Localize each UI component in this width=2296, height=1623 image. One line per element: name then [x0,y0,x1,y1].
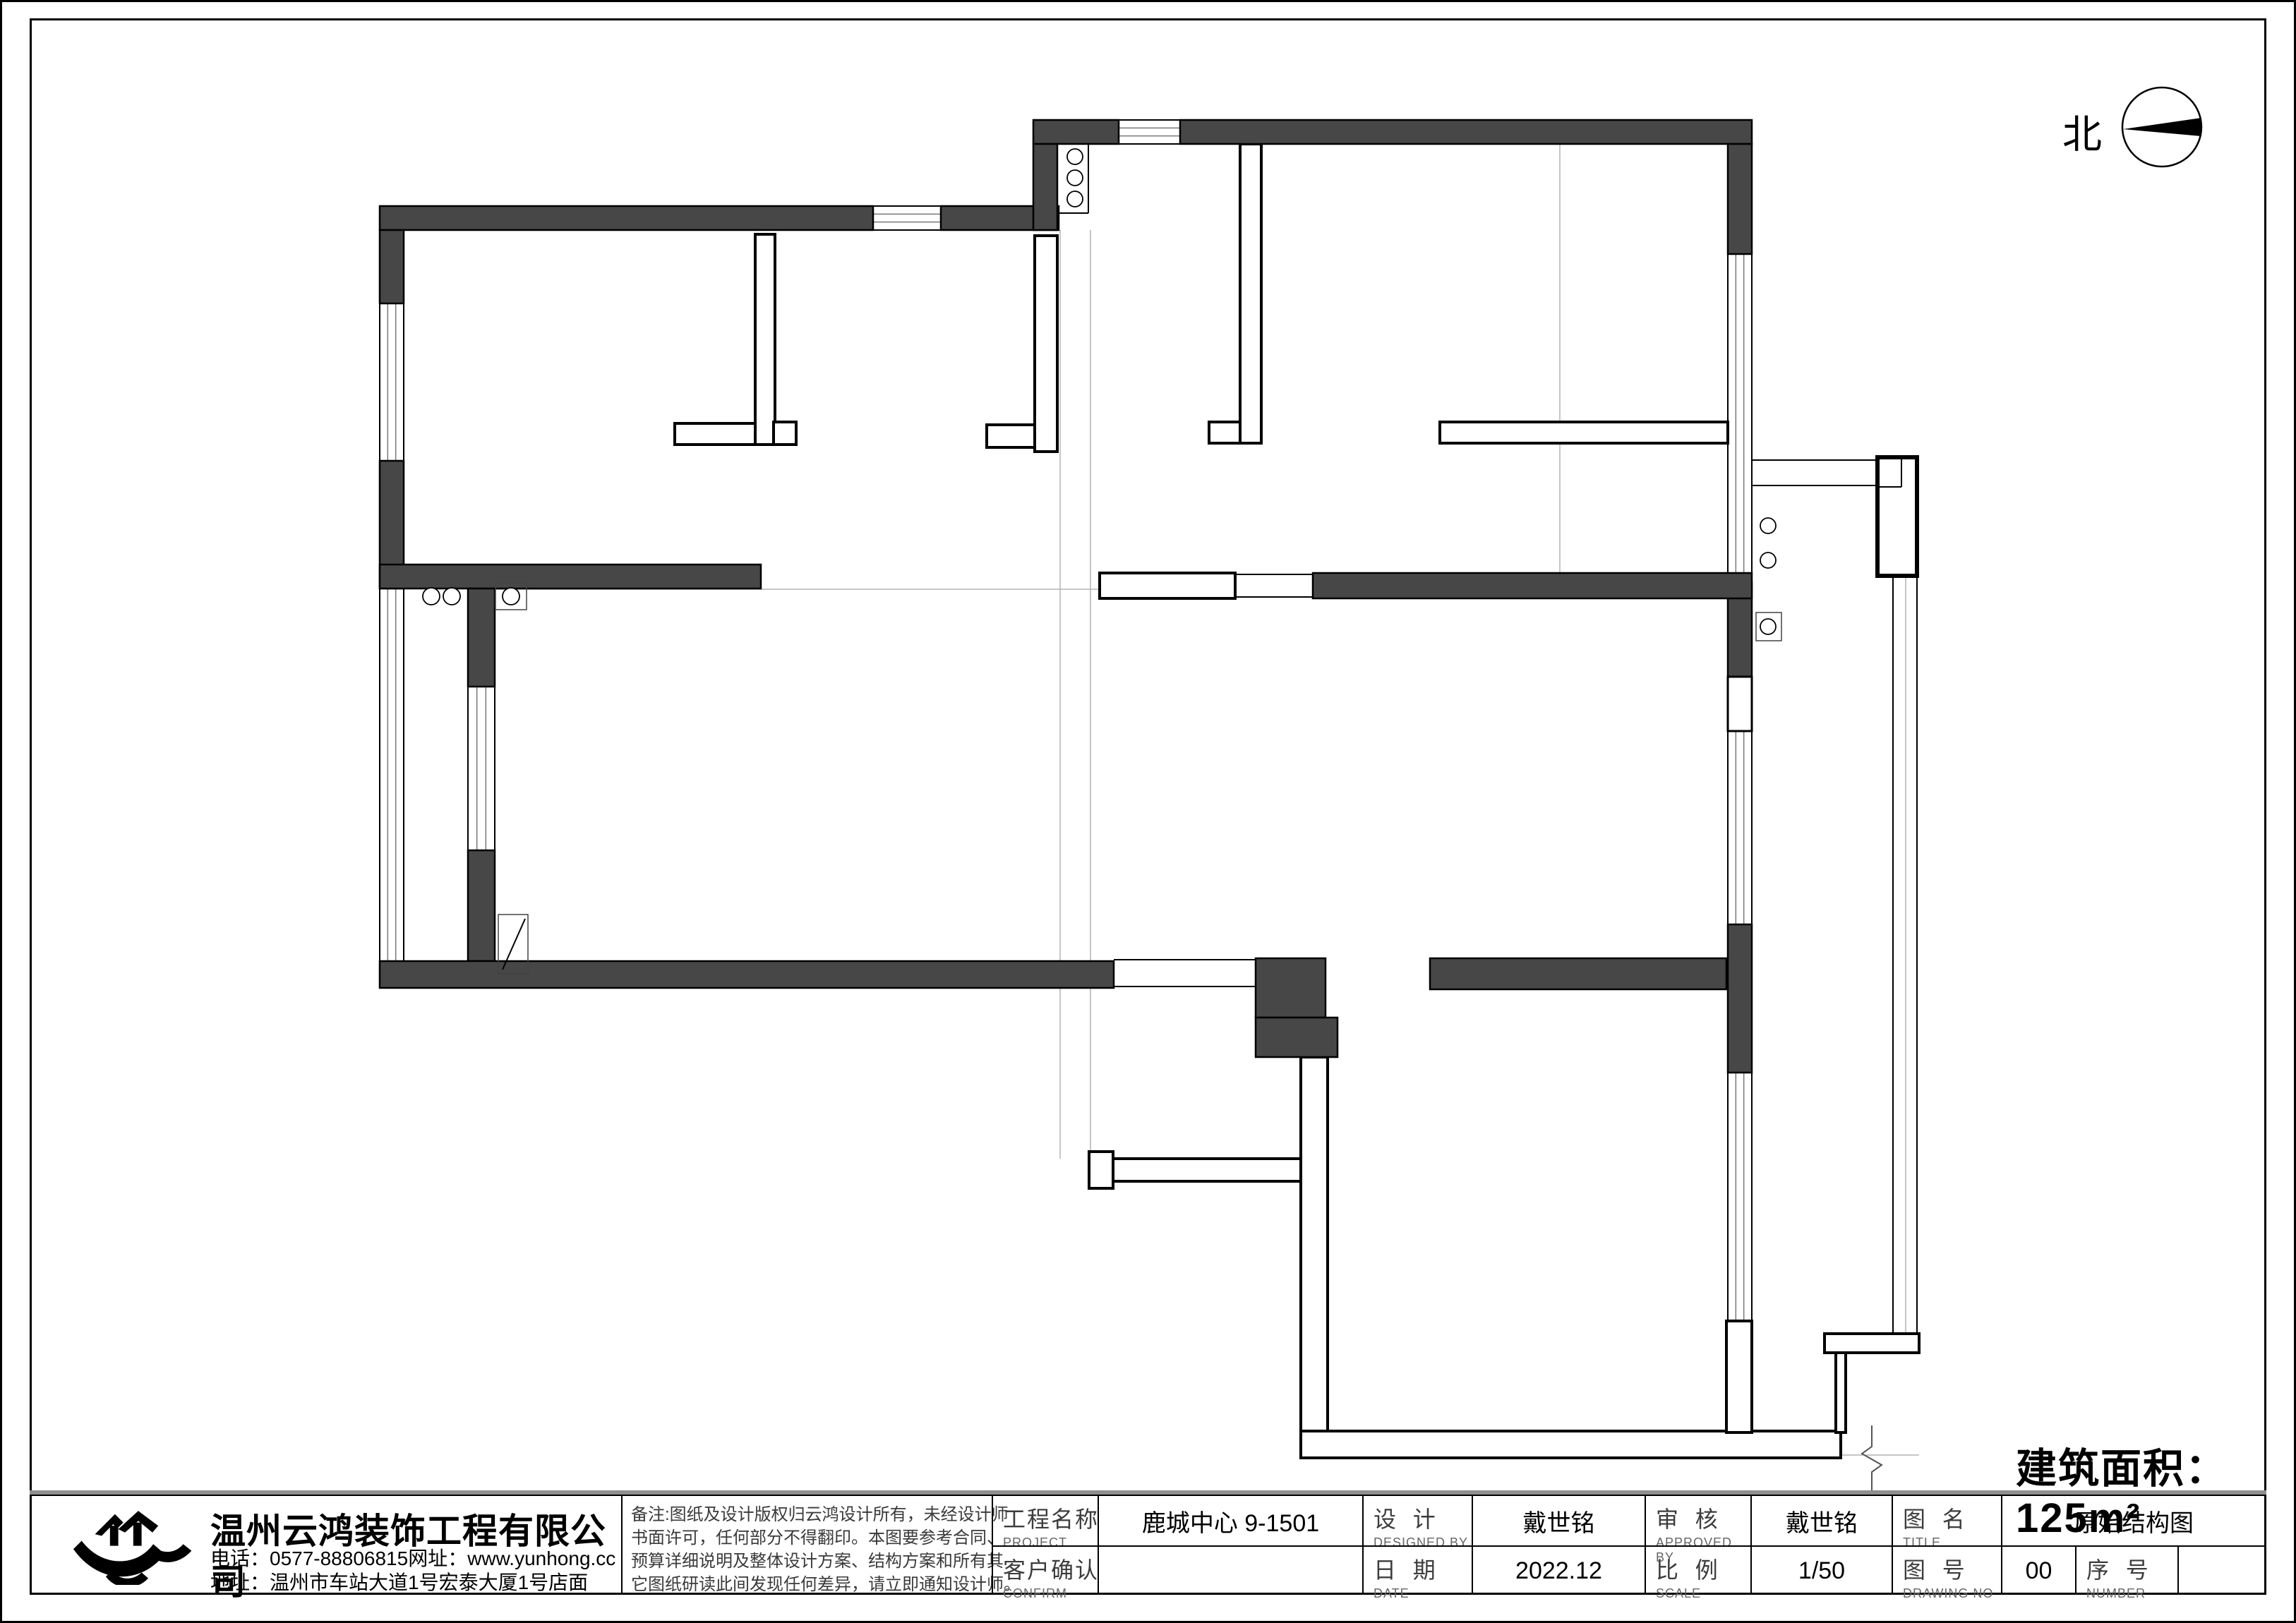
structural-wall [380,961,1114,988]
title-block: 温州云鸿装饰工程有限公司 电话：0577-88806815网址：www.yunh… [30,1490,2266,1595]
partition-wall [1209,422,1240,443]
drawingno-label: 图 号 [1893,1547,2001,1585]
partition-wall [1825,1334,1919,1353]
structural-wall [1728,144,1752,254]
project-label: 工程名称 [993,1496,1098,1534]
scale-label-cell: 比 例 SCALE [1645,1545,1750,1595]
break-symbol [1862,1425,1882,1490]
title-label-cell: 图 名 TITLE [1892,1496,2001,1545]
date-value-cell: 2022.12 [1472,1545,1645,1595]
structural-wall [380,565,761,589]
date-label: 日 期 [1364,1547,1472,1585]
confirm-value-cell [1098,1545,1362,1595]
pipe-circle [1067,149,1083,164]
project-value: 鹿城中心 9-1501 [1099,1496,1362,1545]
structural-wall [1033,144,1057,230]
pipe-circle [1760,553,1776,568]
structural-wall [1728,924,1752,1073]
structural-wall [1430,958,1726,989]
partition-wall [1240,144,1261,443]
project-value-cell: 鹿城中心 9-1501 [1098,1496,1362,1545]
structural-wall [380,206,873,230]
title-value: 原始结构图 [2002,1496,2265,1545]
scale-value-cell: 1/50 [1750,1545,1892,1595]
partition-wall [1440,422,1728,443]
title-value-cell: 原始结构图 [2001,1496,2265,1545]
title-label: 图 名 [1893,1496,2001,1534]
approver-value-cell: 戴世铭 [1750,1496,1892,1545]
partition-wall [1836,1353,1846,1432]
designer-label-cell: 设 计 DESIGNED BY [1362,1496,1472,1545]
confirm-sublabel: CONFIRM [993,1585,1098,1601]
approver-label-cell: 审 核 APPROVED BY [1645,1496,1750,1545]
drawingno-value-cell: 00 [2001,1545,2075,1595]
window [1728,254,1752,583]
structural-wall [1180,120,1752,144]
drawingno-sublabel: DRAWING NO [1893,1585,2001,1601]
window [873,206,941,230]
company-cell: 温州云鸿装饰工程有限公司 电话：0577-88806815网址：www.yunh… [30,1496,621,1595]
window [468,687,495,850]
number-label-cell: 序 号 NUMBER [2075,1545,2177,1595]
designer-label: 设 计 [1364,1496,1472,1534]
window [1728,731,1752,924]
north-label: 北 [2062,103,2102,160]
structural-wall [380,230,404,303]
company-address: 地址：温州市车站大道1号宏泰大厦1号店面 [210,1571,588,1593]
drawingno-value: 00 [2002,1547,2075,1595]
company-logo-icon [71,1506,198,1585]
notes-line3: 预算详细说明及整体设计方案、结构方案和所有其 [631,1552,1004,1571]
confirm-label-cell: 客户确认 CONFIRM [992,1545,1098,1595]
date-sublabel: DATE [1364,1585,1472,1601]
number-value-cell [2177,1545,2266,1595]
partition-wall [1100,573,1235,598]
date-value: 2022.12 [1473,1547,1645,1595]
pipe-circle [1760,518,1776,533]
partition-wall [755,234,775,445]
balcony-wall [1877,457,1917,576]
pipe-circle [1760,619,1776,634]
notes-line1: 备注:图纸及设计版权归云鸿设计所有，未经设计师 [631,1505,1009,1524]
company-phone: 电话：0577-88806815网址：www.yunhong.cc [210,1547,615,1569]
floor-plan-svg [0,0,2296,1623]
structural-wall [468,850,495,961]
pipe-circle [1067,191,1083,207]
window [1728,1073,1752,1321]
drawing-sheet: { "north": {"label": "北"}, "area_label":… [0,0,2296,1623]
window [380,589,404,961]
partition-wall [1113,1159,1301,1181]
pipe-circle [503,588,519,605]
partition-wall [675,423,755,445]
window [380,303,404,461]
number-sublabel: NUMBER [2076,1585,2177,1601]
partition-wall [1726,1321,1752,1432]
structural-wall [1033,120,1119,144]
partition-wall [1301,1057,1328,1432]
drawingno-label-cell: 图 号 DRAWING NO [1892,1545,2001,1595]
structural-wall [468,589,495,687]
title-block-body: 温州云鸿装饰工程有限公司 电话：0577-88806815网址：www.yunh… [30,1495,2266,1595]
designer-value: 戴世铭 [1473,1496,1645,1545]
designer-value-cell: 戴世铭 [1472,1496,1645,1545]
scale-sublabel: SCALE [1646,1585,1750,1601]
partition-wall [1301,1431,1841,1458]
structural-wall [1313,573,1752,598]
date-label-cell: 日 期 DATE [1362,1545,1472,1595]
north-compass-needle [2123,118,2201,136]
notes-line4: 它图纸研读此间发现任何差异，请立即通知设计师。 [631,1575,1021,1594]
approver-value: 戴世铭 [1752,1496,1892,1545]
company-contact: 电话：0577-88806815网址：www.yunhong.cc地址：温州市车… [210,1547,615,1595]
window [1119,120,1180,144]
confirm-label: 客户确认 [993,1547,1098,1585]
structural-wall [1256,1018,1338,1057]
partition-wall [987,425,1035,447]
confirm-value [1099,1547,1362,1595]
project-label-cell: 工程名称 PROJECT [992,1496,1098,1545]
scale-value: 1/50 [1752,1547,1892,1595]
partition-wall [1035,236,1057,452]
number-label: 序 号 [2076,1547,2177,1585]
number-value [2179,1547,2266,1595]
partition-wall [1089,1152,1113,1188]
scale-label: 比 例 [1646,1547,1750,1585]
notes-cell: 备注:图纸及设计版权归云鸿设计所有，未经设计师书面许可，任何部分不得翻印。本图要… [621,1496,992,1595]
pipe-circle [1067,170,1083,186]
wall-opening [1728,677,1752,731]
pipe-circle [443,588,460,605]
partition-wall [774,422,796,445]
structural-wall [1256,958,1326,1018]
notes-line2: 书面许可，任何部分不得翻印。本图要参考合同、 [631,1528,1004,1547]
approver-label: 审 核 [1646,1496,1750,1534]
pipe-circle [423,588,440,605]
